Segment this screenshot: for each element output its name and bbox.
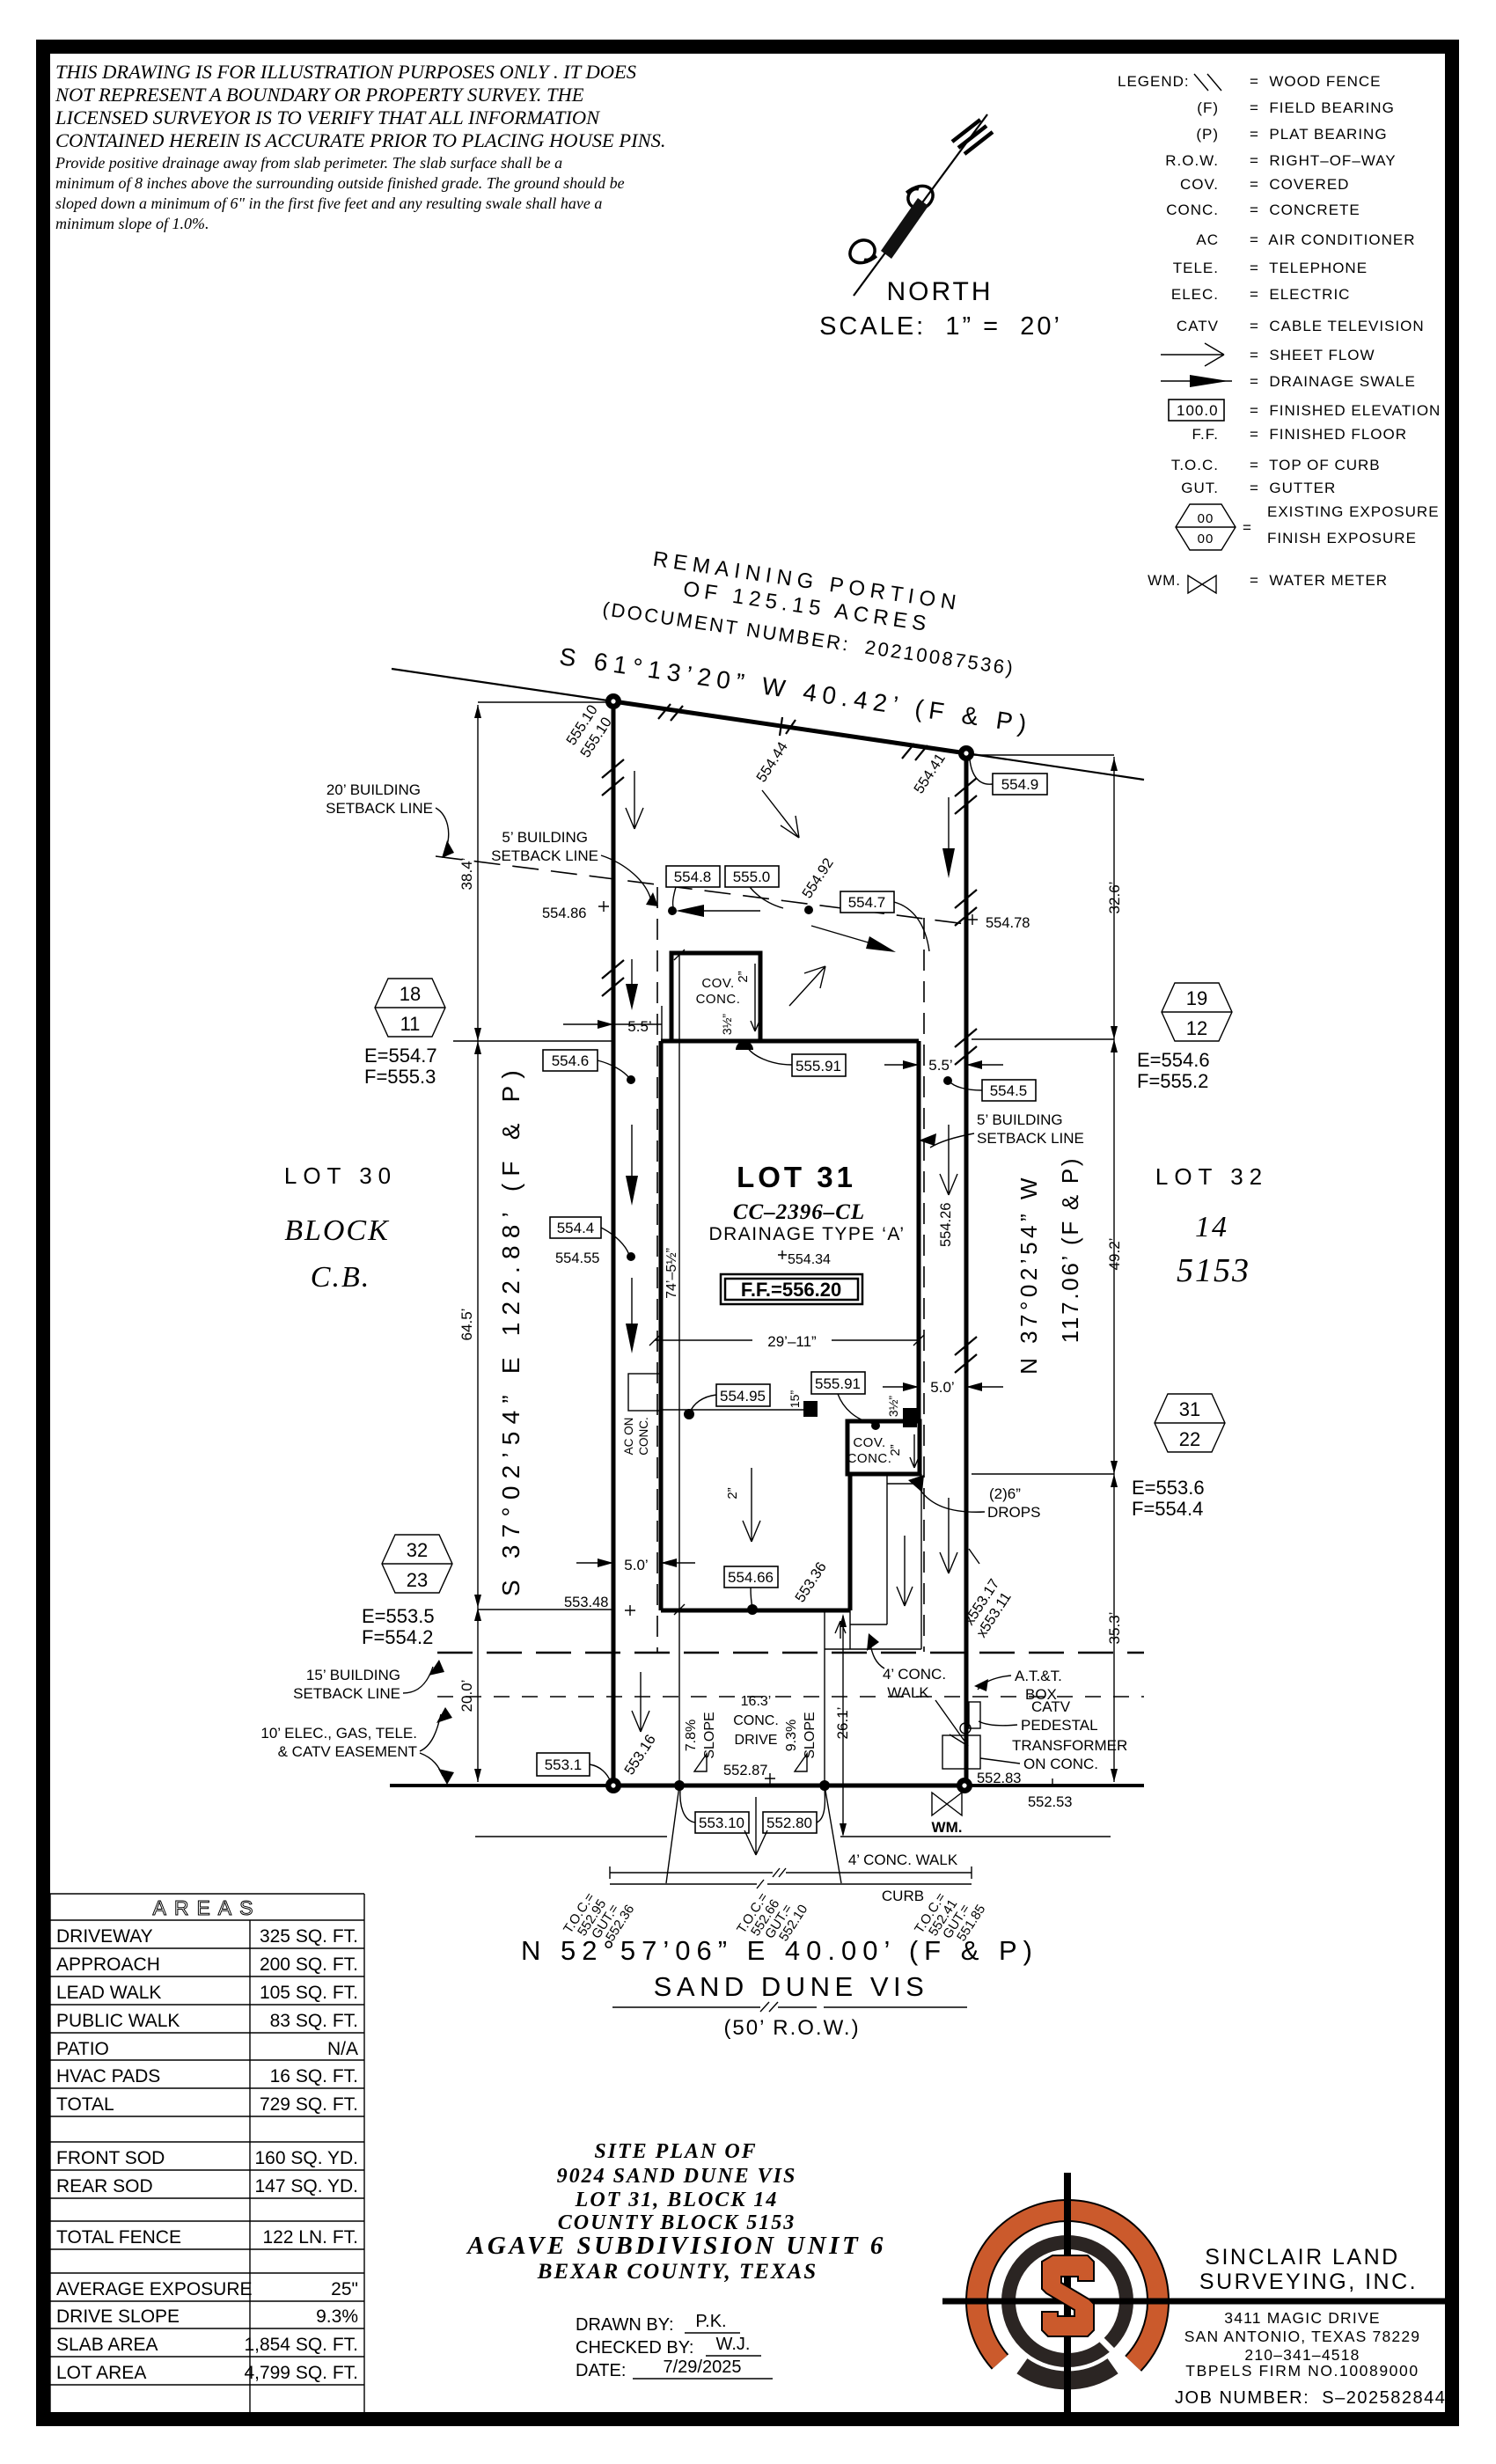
svg-text:PATIO: PATIO <box>56 2039 109 2059</box>
svg-text:= FIELD BEARING: = FIELD BEARING <box>1250 99 1395 116</box>
svg-text:5.5’: 5.5’ <box>928 1057 952 1074</box>
svg-text:= DRAINAGE SWALE: = DRAINAGE SWALE <box>1250 373 1416 390</box>
svg-text:554.78: 554.78 <box>986 915 1030 931</box>
svg-text:554.6: 554.6 <box>552 1052 590 1069</box>
svg-text:3411 MAGIC DRIVE: 3411 MAGIC DRIVE <box>1224 2309 1380 2327</box>
svg-text:32.6’: 32.6’ <box>1106 882 1123 914</box>
svg-text:minimum of 8 inches above the: minimum of 8 inches above the surroundin… <box>55 174 625 192</box>
svg-text:minimum slope of 1.0%.: minimum slope of 1.0%. <box>55 215 209 232</box>
svg-text:E=553.5: E=553.5 <box>362 1605 435 1627</box>
svg-text:2”: 2” <box>736 971 751 982</box>
svg-text:S 37°02’54” E 122.88’ (F & P): S 37°02’54” E 122.88’ (F & P) <box>497 1063 524 1596</box>
svg-text:= WOOD FENCE: = WOOD FENCE <box>1250 73 1381 90</box>
svg-text:LICENSED SURVEYOR IS TO VERIFY: LICENSED SURVEYOR IS TO VERIFY THAT ALL … <box>55 106 601 128</box>
svg-text:TBPELS FIRM NO.10089000: TBPELS FIRM NO.10089000 <box>1185 2362 1419 2380</box>
svg-text:15”: 15” <box>788 1390 802 1409</box>
svg-text:(P): (P) <box>1196 126 1219 143</box>
svg-text:200 SQ. FT.: 200 SQ. FT. <box>260 1954 358 1975</box>
svg-text:W.J.: W.J. <box>716 2335 751 2354</box>
svg-text:= FINISHED FLOOR: = FINISHED FLOOR <box>1250 426 1407 443</box>
svg-text:3½”: 3½” <box>886 1396 900 1417</box>
svg-text:DRAWN BY:: DRAWN BY: <box>576 2315 674 2335</box>
svg-text:F=554.2: F=554.2 <box>362 1626 433 1648</box>
svg-text:DATE:: DATE: <box>576 2361 626 2380</box>
svg-text:TRANSFORMER: TRANSFORMER <box>1012 1737 1127 1754</box>
svg-text:5.5’: 5.5’ <box>627 1018 651 1035</box>
svg-text:= RIGHT–OF–WAY: = RIGHT–OF–WAY <box>1250 152 1397 169</box>
svg-text:554.66: 554.66 <box>728 1569 774 1586</box>
svg-text:E=553.6: E=553.6 <box>1132 1477 1205 1499</box>
svg-text:FRONT SOD: FRONT SOD <box>56 2148 165 2168</box>
svg-text:554.86: 554.86 <box>542 906 586 921</box>
svg-text:AC: AC <box>1196 231 1219 248</box>
svg-text:SETBACK LINE: SETBACK LINE <box>293 1685 400 1702</box>
svg-text:F.F.: F.F. <box>1192 426 1219 443</box>
svg-text:= GUTTER: = GUTTER <box>1250 480 1336 496</box>
svg-text:BEXAR COUNTY, TEXAS: BEXAR COUNTY, TEXAS <box>537 2260 818 2284</box>
svg-text:WALK: WALK <box>887 1684 929 1701</box>
svg-text:SAN ANTONIO, TEXAS 78229: SAN ANTONIO, TEXAS 78229 <box>1184 2328 1420 2345</box>
svg-text:553.1: 553.1 <box>545 1756 583 1773</box>
svg-text:100.0: 100.0 <box>1177 402 1219 419</box>
svg-text:LEGEND:: LEGEND: <box>1118 73 1190 90</box>
svg-text:554.9: 554.9 <box>1001 776 1039 793</box>
svg-text:147 SQ. YD.: 147 SQ. YD. <box>254 2176 358 2196</box>
svg-text:T.O.C.: T.O.C. <box>1171 457 1219 473</box>
svg-text:SINCLAIR LAND: SINCLAIR LAND <box>1205 2245 1399 2270</box>
svg-text:SURVEYING, INC.: SURVEYING, INC. <box>1199 2270 1418 2294</box>
svg-text:= CONCRETE: = CONCRETE <box>1250 202 1360 218</box>
svg-text:F=554.4: F=554.4 <box>1132 1498 1203 1520</box>
svg-text:729 SQ. FT.: 729 SQ. FT. <box>260 2094 358 2115</box>
svg-text:E=554.7: E=554.7 <box>364 1045 437 1067</box>
svg-text:EXISTING EXPOSURE: EXISTING EXPOSURE <box>1267 503 1440 520</box>
svg-text:F=555.2: F=555.2 <box>1137 1070 1208 1092</box>
svg-text:49.2’: 49.2’ <box>1106 1238 1123 1271</box>
svg-text:CURB: CURB <box>882 1888 924 1904</box>
svg-text:555.0: 555.0 <box>733 869 771 885</box>
svg-text:210–341–4518: 210–341–4518 <box>1244 2346 1360 2364</box>
svg-text:SETBACK LINE: SETBACK LINE <box>326 800 433 817</box>
svg-text:DRIVEWAY: DRIVEWAY <box>56 1926 153 1947</box>
svg-text:552.53: 552.53 <box>1028 1794 1072 1810</box>
svg-text:554.34: 554.34 <box>788 1252 831 1267</box>
svg-text:DROPS: DROPS <box>987 1504 1040 1521</box>
svg-text:555.91: 555.91 <box>796 1058 841 1074</box>
svg-text:SCALE: 1” = 20’: SCALE: 1” = 20’ <box>819 312 1062 341</box>
svg-text:00: 00 <box>1198 511 1214 526</box>
svg-text:LEAD WALK: LEAD WALK <box>56 1983 161 2003</box>
svg-text:F.F.=556.20: F.F.=556.20 <box>741 1279 841 1301</box>
svg-text:= AIR CONDITIONER: = AIR CONDITIONER <box>1250 231 1416 248</box>
svg-text:325 SQ. FT.: 325 SQ. FT. <box>260 1926 358 1947</box>
svg-text:122 LN. FT.: 122 LN. FT. <box>262 2227 358 2248</box>
svg-text:16 SQ. FT.: 16 SQ. FT. <box>270 2066 358 2086</box>
svg-text:F=555.3: F=555.3 <box>364 1066 436 1088</box>
svg-text:117.06’ (F & P): 117.06’ (F & P) <box>1057 1156 1083 1343</box>
svg-text:9.3%: 9.3% <box>316 2306 358 2327</box>
svg-text:TOTAL: TOTAL <box>56 2094 114 2115</box>
svg-text:20.0’: 20.0’ <box>458 1680 475 1712</box>
svg-text:32: 32 <box>407 1539 428 1561</box>
svg-text:CHECKED BY:: CHECKED BY: <box>576 2338 693 2358</box>
svg-text:3½”: 3½” <box>720 1014 734 1035</box>
svg-text:FINISH EXPOSURE: FINISH EXPOSURE <box>1267 530 1417 546</box>
svg-text:R.O.W.: R.O.W. <box>1165 152 1219 169</box>
svg-text:PUBLIC WALK: PUBLIC WALK <box>56 2011 180 2031</box>
svg-text:COV.: COV. <box>1180 176 1219 193</box>
svg-text:554.55: 554.55 <box>555 1250 599 1266</box>
svg-text:(50’ R.O.W.): (50’ R.O.W.) <box>723 2016 860 2040</box>
svg-text:ON CONC.: ON CONC. <box>1023 1756 1098 1772</box>
svg-text:4’ CONC.: 4’ CONC. <box>883 1666 946 1683</box>
svg-text:LOT 31: LOT 31 <box>737 1161 856 1193</box>
svg-text:CONC.: CONC. <box>847 1451 892 1466</box>
svg-text:CONC.: CONC. <box>1166 202 1219 218</box>
svg-text:5’ BUILDING: 5’ BUILDING <box>977 1111 1063 1128</box>
svg-text:LOT 30: LOT 30 <box>284 1162 397 1189</box>
svg-text:555.91: 555.91 <box>815 1375 861 1392</box>
svg-text:APPROACH: APPROACH <box>56 1954 160 1975</box>
svg-text:TELE.: TELE. <box>1173 260 1219 276</box>
svg-text:23: 23 <box>407 1569 428 1591</box>
svg-text:= TOP OF CURB: = TOP OF CURB <box>1250 457 1381 473</box>
svg-text:=: = <box>1243 519 1252 536</box>
svg-text:105 SQ. FT.: 105 SQ. FT. <box>260 1983 358 2003</box>
svg-text:JOB NUMBER: S–202582844: JOB NUMBER: S–202582844 <box>1175 2388 1446 2408</box>
svg-text:CATV: CATV <box>1177 318 1219 334</box>
svg-text:5.0’: 5.0’ <box>930 1379 954 1396</box>
svg-text:10’ ELEC., GAS, TELE.: 10’ ELEC., GAS, TELE. <box>260 1725 417 1742</box>
svg-text:SITE PLAN OF: SITE PLAN OF <box>594 2140 757 2163</box>
svg-text:552.83: 552.83 <box>977 1771 1021 1786</box>
svg-text:SAND DUNE VIS: SAND DUNE VIS <box>654 1971 929 2002</box>
svg-text:38.4’: 38.4’ <box>458 858 475 891</box>
svg-text:SLOPE: SLOPE <box>702 1712 717 1758</box>
svg-text:LOT AREA: LOT AREA <box>56 2363 146 2383</box>
svg-text:CATV: CATV <box>1031 1698 1071 1715</box>
svg-text:74’–5½”: 74’–5½” <box>664 1248 679 1299</box>
svg-text:5’ BUILDING: 5’ BUILDING <box>502 829 588 846</box>
svg-text:64.5’: 64.5’ <box>458 1309 475 1341</box>
svg-text:26.1’: 26.1’ <box>834 1707 851 1740</box>
svg-text:83 SQ. FT.: 83 SQ. FT. <box>270 2011 358 2031</box>
svg-text:9024 SAND DUNE VIS: 9024 SAND DUNE VIS <box>557 2165 797 2188</box>
svg-text:554.95: 554.95 <box>720 1388 766 1404</box>
svg-text:CONC.: CONC. <box>733 1713 779 1728</box>
svg-text:552.87: 552.87 <box>723 1763 767 1778</box>
svg-text:16.3’: 16.3’ <box>741 1694 772 1709</box>
svg-text:20’ BUILDING: 20’ BUILDING <box>326 781 421 798</box>
svg-text:HVAC PADS: HVAC PADS <box>56 2066 160 2086</box>
svg-text:CONC.: CONC. <box>696 992 741 1007</box>
svg-text:18: 18 <box>400 983 421 1005</box>
svg-text:= ELECTRIC: = ELECTRIC <box>1250 286 1350 303</box>
svg-text:2”: 2” <box>888 1444 903 1456</box>
svg-text:DRIVE SLOPE: DRIVE SLOPE <box>56 2306 180 2327</box>
svg-text:552.80: 552.80 <box>766 1815 812 1831</box>
svg-text:LOT 32: LOT 32 <box>1155 1163 1268 1190</box>
svg-text:COV.: COV. <box>701 976 734 991</box>
svg-text:P.K.: P.K. <box>695 2312 726 2331</box>
svg-text:554.7: 554.7 <box>848 894 886 911</box>
svg-text:(2)6”: (2)6” <box>989 1485 1021 1502</box>
svg-text:5153: 5153 <box>1177 1252 1250 1289</box>
svg-text:E=554.6: E=554.6 <box>1137 1049 1210 1071</box>
svg-text:C.B.: C.B. <box>311 1261 370 1294</box>
svg-text:sloped down a minimum of 6" in: sloped down a minimum of 6" in the first… <box>55 194 602 212</box>
svg-text:22: 22 <box>1179 1428 1200 1450</box>
svg-text:N 52°57’06” E 40.00’ (F & P): N 52°57’06” E 40.00’ (F & P) <box>521 1935 1038 1966</box>
svg-text:AC ON: AC ON <box>622 1418 635 1456</box>
svg-text:35.3’: 35.3’ <box>1106 1612 1123 1645</box>
svg-text:& CATV EASEMENT: & CATV EASEMENT <box>278 1743 417 1760</box>
svg-text:7.8%: 7.8% <box>684 1720 699 1751</box>
svg-text:160 SQ. YD.: 160 SQ. YD. <box>254 2148 358 2168</box>
svg-text:CONTAINED HEREIN IS ACCURATE P: CONTAINED HEREIN IS ACCURATE PRIOR TO PL… <box>55 129 666 151</box>
svg-text:7/29/2025: 7/29/2025 <box>664 2358 742 2377</box>
svg-text:11: 11 <box>400 1013 421 1035</box>
svg-text:DRIVE: DRIVE <box>735 1733 778 1748</box>
svg-text:THIS DRAWING IS FOR ILLUSTRATI: THIS DRAWING IS FOR ILLUSTRATION PURPOSE… <box>55 61 636 83</box>
svg-text:4,799 SQ. FT.: 4,799 SQ. FT. <box>244 2363 358 2383</box>
svg-text:TOTAL FENCE: TOTAL FENCE <box>56 2227 181 2248</box>
svg-text:LOT 31, BLOCK 14: LOT 31, BLOCK 14 <box>575 2189 779 2211</box>
svg-text:553.48: 553.48 <box>564 1595 608 1610</box>
svg-text:PEDESTAL: PEDESTAL <box>1021 1717 1098 1734</box>
svg-text:= SHEET FLOW: = SHEET FLOW <box>1250 347 1375 363</box>
svg-text:= FINISHED ELEVATION: = FINISHED ELEVATION <box>1250 402 1441 419</box>
svg-text:COV.: COV. <box>853 1435 885 1450</box>
svg-text:AVERAGE EXPOSURE: AVERAGE EXPOSURE <box>56 2279 253 2299</box>
svg-text:553.10: 553.10 <box>699 1815 744 1831</box>
svg-text:15’ BUILDING: 15’ BUILDING <box>306 1667 400 1683</box>
svg-text:NOT REPRESENT A BOUNDARY OR PR: NOT REPRESENT A BOUNDARY OR PROPERTY SUR… <box>55 84 584 106</box>
svg-text:WM.: WM. <box>1148 572 1181 589</box>
svg-text:00: 00 <box>1198 532 1214 546</box>
svg-text:29’–11”: 29’–11” <box>767 1333 817 1350</box>
svg-text:= COVERED: = COVERED <box>1250 176 1349 193</box>
svg-text:(F): (F) <box>1197 99 1219 116</box>
svg-text:DRAINAGE TYPE ‘A’: DRAINAGE TYPE ‘A’ <box>708 1224 905 1244</box>
svg-text:= PLAT BEARING: = PLAT BEARING <box>1250 126 1388 143</box>
svg-text:5.0’: 5.0’ <box>624 1557 648 1573</box>
svg-text:A.T.&T.: A.T.&T. <box>1015 1668 1062 1684</box>
svg-text:= WATER METER: = WATER METER <box>1250 572 1388 589</box>
svg-text:N 37°02’54” W: N 37°02’54” W <box>1016 1174 1042 1375</box>
svg-text:CONC.: CONC. <box>637 1417 650 1456</box>
svg-text:12: 12 <box>1186 1017 1207 1039</box>
svg-text:SETBACK LINE: SETBACK LINE <box>977 1130 1084 1147</box>
svg-text:554.8: 554.8 <box>674 869 712 885</box>
svg-text:4’ CONC. WALK: 4’ CONC. WALK <box>848 1852 958 1868</box>
svg-text:25": 25" <box>331 2279 358 2299</box>
svg-text:19: 19 <box>1186 987 1207 1009</box>
svg-text:31: 31 <box>1179 1398 1200 1420</box>
svg-text:SLAB AREA: SLAB AREA <box>56 2335 158 2355</box>
svg-text:REAR SOD: REAR SOD <box>56 2176 153 2196</box>
svg-text:SLOPE: SLOPE <box>803 1712 818 1758</box>
svg-text:NORTH: NORTH <box>886 277 993 306</box>
svg-text:9.3%: 9.3% <box>784 1720 799 1751</box>
svg-text:ELEC.: ELEC. <box>1171 286 1219 303</box>
svg-text:554.4: 554.4 <box>557 1220 595 1236</box>
svg-text:CC–2396–CL: CC–2396–CL <box>733 1200 865 1224</box>
svg-text:WM.: WM. <box>932 1819 963 1836</box>
svg-text:N/A: N/A <box>327 2039 358 2059</box>
svg-text:1,854 SQ. FT.: 1,854 SQ. FT. <box>244 2335 358 2355</box>
svg-text:554.5: 554.5 <box>990 1082 1028 1099</box>
svg-text:Provide positive drainage away: Provide positive drainage away from slab… <box>55 154 562 172</box>
svg-text:= CABLE TELEVISION: = CABLE TELEVISION <box>1250 318 1425 334</box>
svg-text:554.26: 554.26 <box>938 1203 954 1247</box>
svg-text:AREAS: AREAS <box>153 1896 261 1919</box>
svg-text:SETBACK LINE: SETBACK LINE <box>491 847 598 864</box>
svg-text:AGAVE SUBDIVISION UNIT 6: AGAVE SUBDIVISION UNIT 6 <box>466 2232 886 2260</box>
svg-text:GUT.: GUT. <box>1181 480 1219 496</box>
svg-text:14: 14 <box>1195 1211 1228 1243</box>
svg-text:= TELEPHONE: = TELEPHONE <box>1250 260 1368 276</box>
svg-text:2”: 2” <box>725 1487 740 1499</box>
svg-text:BLOCK: BLOCK <box>284 1214 390 1247</box>
